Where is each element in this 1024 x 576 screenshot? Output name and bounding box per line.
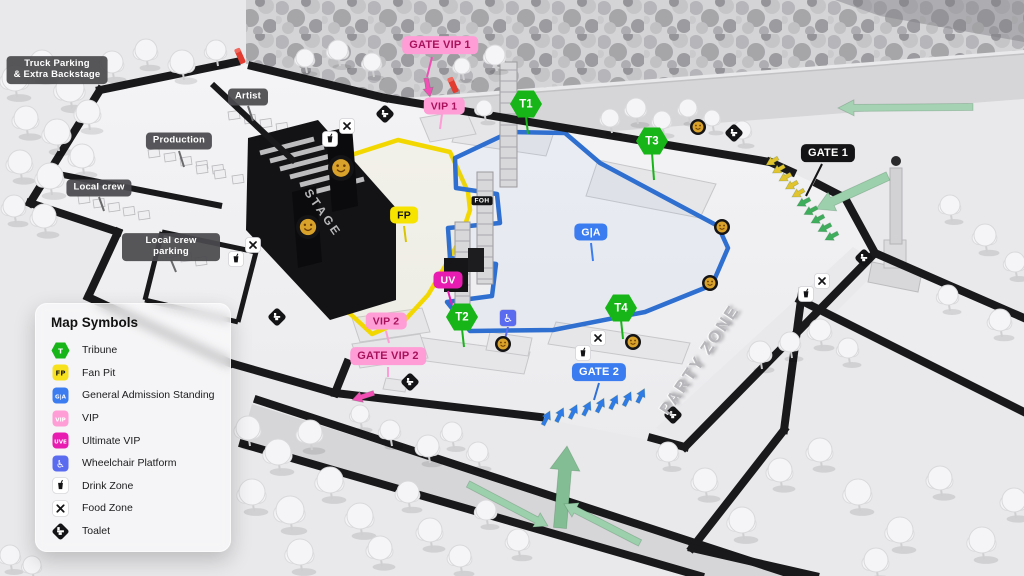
food-zone-icon <box>340 119 355 134</box>
drink-zone-icon <box>799 287 814 302</box>
legend-item-tribune: T Tribune <box>51 339 219 362</box>
tribune-badge: T <box>51 341 70 360</box>
drink-zone-icon <box>229 252 244 267</box>
legend-label-vip: VIP <box>82 412 99 424</box>
legend-label-wheelchair-platform: Wheelchair Platform <box>82 457 177 469</box>
vip-badge: VIP <box>51 409 70 428</box>
label-truck-parking: Truck Parking & Extra Backstage <box>7 56 108 84</box>
label-local-crew: Local crew <box>66 180 131 197</box>
legend-item-fan-pit: FP Fan Pit <box>51 362 219 385</box>
legend-item-vip: VIP VIP <box>51 407 219 430</box>
label-gate-vip-1: GATE VIP 1 <box>402 36 478 54</box>
food-zone-icon <box>815 274 830 289</box>
drink-icon <box>51 476 70 495</box>
smiley-logo-icon <box>625 334 641 350</box>
drink-zone-icon <box>576 346 591 361</box>
wheelchair-icon: ♿ <box>51 454 70 473</box>
legend-item-food-zone: Food Zone <box>51 497 219 520</box>
label-vip-2: VIP 2 <box>366 312 407 329</box>
svg-text:G|A: G|A <box>55 394 67 400</box>
svg-text:UVE: UVE <box>54 440 67 446</box>
svg-text:FP: FP <box>56 370 66 378</box>
legend-panel: Map Symbols T Tribune FP Fan Pit G|A Gen… <box>35 303 231 552</box>
general-admission-badge: G|A <box>51 386 70 405</box>
smiley-logo-icon <box>495 336 511 352</box>
legend-item-drink-zone: Drink Zone <box>51 475 219 498</box>
legend-title: Map Symbols <box>51 315 219 330</box>
legend-item-ultimate-vip: UVE Ultimate VIP <box>51 429 219 452</box>
legend-label-tribune: Tribune <box>82 344 117 356</box>
fan-pit-badge: FP <box>51 363 70 382</box>
label-foh: FOH <box>472 196 493 205</box>
food-zone-icon <box>246 238 261 253</box>
legend-label-general-admission: General Admission Standing <box>82 389 215 401</box>
label-gate-vip-2: GATE VIP 2 <box>350 347 426 365</box>
legend-label-ultimate-vip: Ultimate VIP <box>82 435 140 447</box>
festival-map: ♿ Truck Parking & Extra Backstage Artist… <box>0 0 1024 576</box>
label-fan-pit: FP <box>390 206 418 223</box>
legend-label-food-zone: Food Zone <box>82 502 133 514</box>
food-icon <box>51 499 70 518</box>
smiley-logo-icon <box>328 155 354 181</box>
svg-text:♿: ♿ <box>503 312 513 325</box>
label-local-crew-parking: Local crew parking <box>122 233 220 261</box>
drink-zone-icon <box>323 132 338 147</box>
label-production: Production <box>146 133 212 150</box>
smiley-logo-icon <box>296 215 320 239</box>
legend-item-wheelchair-platform: ♿ Wheelchair Platform <box>51 452 219 475</box>
wheelchair-icon: ♿ <box>500 310 517 327</box>
label-vip-1: VIP 1 <box>424 97 465 114</box>
toilet-icon <box>51 522 70 541</box>
label-artist: Artist <box>228 89 268 106</box>
legend-label-drink-zone: Drink Zone <box>82 480 133 492</box>
smiley-logo-icon <box>702 275 718 291</box>
label-general-admission: G|A <box>574 223 607 240</box>
legend-label-toilet: Toalet <box>82 525 110 537</box>
legend-label-fan-pit: Fan Pit <box>82 367 115 379</box>
food-zone-icon <box>591 331 606 346</box>
svg-text:VIP: VIP <box>55 417 66 423</box>
legend-item-toilet: Toalet <box>51 520 219 543</box>
ultimate-vip-badge: UVE <box>51 431 70 450</box>
svg-text:T: T <box>58 347 63 355</box>
label-ultimate-vip: UV <box>434 271 463 288</box>
legend-item-general-admission: G|A General Admission Standing <box>51 384 219 407</box>
svg-text:♿: ♿ <box>56 459 65 470</box>
smiley-logo-icon <box>714 219 730 235</box>
label-gate-1: GATE 1 <box>801 144 855 162</box>
label-gate-2: GATE 2 <box>572 363 626 381</box>
smiley-logo-icon <box>690 119 706 135</box>
